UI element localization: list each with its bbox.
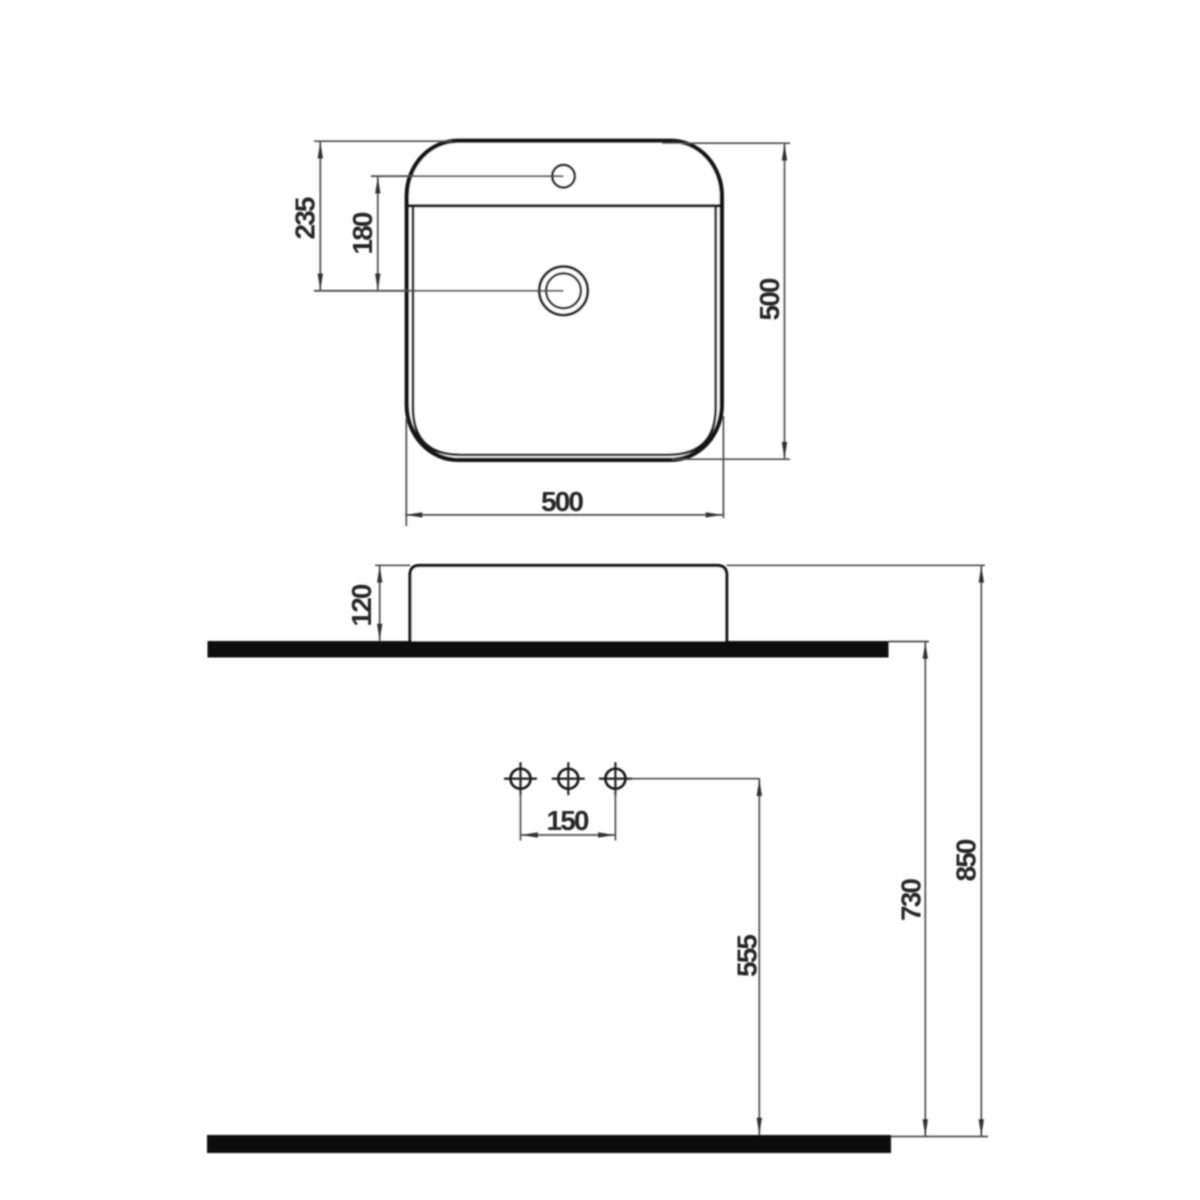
svg-text:235: 235 <box>290 197 321 240</box>
svg-text:150: 150 <box>547 805 590 836</box>
svg-text:850: 850 <box>951 839 982 882</box>
svg-text:180: 180 <box>347 212 378 255</box>
svg-text:730: 730 <box>896 878 927 921</box>
svg-text:120: 120 <box>346 584 377 627</box>
svg-text:500: 500 <box>541 486 584 517</box>
svg-text:500: 500 <box>754 278 785 321</box>
svg-text:555: 555 <box>732 934 763 977</box>
